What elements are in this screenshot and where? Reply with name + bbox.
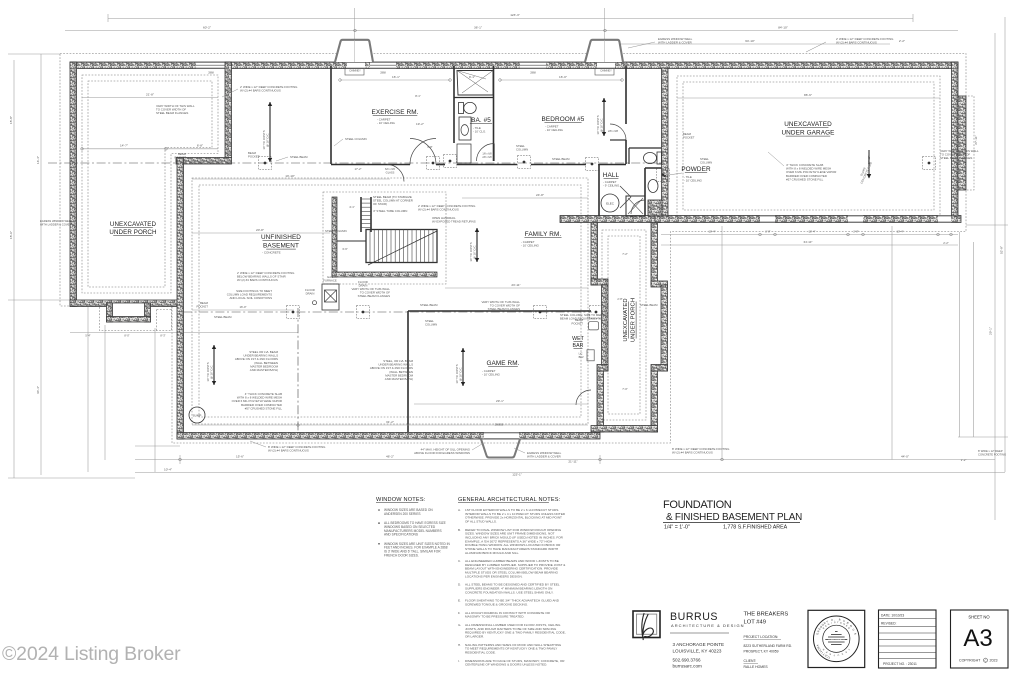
svg-text:ALUMINUM BRICK MOULD AND SILL.: ALUMINUM BRICK MOULD AND SILL. bbox=[465, 551, 519, 555]
svg-text:2868: 2868 bbox=[208, 72, 214, 75]
svg-text:23'-11": 23'-11" bbox=[511, 283, 520, 287]
svg-text:BASEMENT: BASEMENT bbox=[263, 243, 299, 250]
svg-text:COMMONWEALTH: COMMONWEALTH bbox=[828, 638, 845, 641]
svg-text:C.: C. bbox=[458, 559, 461, 563]
svg-text:46'-2": 46'-2" bbox=[386, 454, 394, 458]
svg-text:A.: A. bbox=[458, 508, 461, 512]
svg-text:2'-2": 2'-2" bbox=[943, 241, 949, 245]
svg-text:©2024 Listing Broker: ©2024 Listing Broker bbox=[2, 643, 181, 665]
svg-text:5'-4": 5'-4" bbox=[85, 334, 90, 338]
svg-text:#57 CRUSHED STONE FILL: #57 CRUSHED STONE FILL bbox=[245, 406, 283, 410]
svg-text:CLIENT:: CLIENT: bbox=[744, 659, 757, 663]
svg-text:- 10' CLG.: - 10' CLG. bbox=[473, 130, 486, 134]
svg-text:3 ANCHORAGE POINTE: 3 ANCHORAGE POINTE bbox=[673, 642, 725, 647]
svg-text:STEEL BEAM FLANGES: STEEL BEAM FLANGES bbox=[358, 294, 390, 298]
svg-text:20'-8": 20'-8" bbox=[256, 228, 264, 232]
svg-text:POCKET: POCKET bbox=[248, 154, 260, 158]
svg-text:6'-8": 6'-8" bbox=[427, 145, 432, 149]
svg-text:G.: G. bbox=[458, 623, 461, 627]
svg-text:10'-4": 10'-4" bbox=[808, 230, 815, 234]
svg-text:W/ (2) #4 BARS CONTINUOUS: W/ (2) #4 BARS CONTINUOUS bbox=[240, 89, 281, 93]
svg-text:- 10' CEILING: - 10' CEILING bbox=[377, 121, 396, 125]
svg-text:E.: E. bbox=[458, 599, 461, 603]
svg-text:LOCATIONS PER ENGINEERS DESIGN: LOCATIONS PER ENGINEERS DESIGN. bbox=[465, 574, 523, 578]
svg-text:STEEL BEAM: STEEL BEAM bbox=[214, 315, 232, 319]
svg-text:REVISED:: REVISED: bbox=[881, 621, 896, 625]
svg-text:STEEL BEAM: STEEL BEAM bbox=[290, 155, 308, 159]
svg-text:502.690.3766: 502.690.3766 bbox=[673, 658, 702, 663]
svg-text:PROJECT LOCATION:: PROJECT LOCATION: bbox=[744, 635, 779, 639]
svg-text:FRENCH DOOR SIZES.: FRENCH DOOR SIZES. bbox=[384, 553, 419, 557]
svg-text:8'-1": 8'-1" bbox=[415, 94, 421, 98]
svg-text:10'-4": 10'-4" bbox=[164, 467, 172, 471]
svg-text:OF STAIR): OF STAIR) bbox=[373, 202, 387, 206]
svg-text:@ 16" O.C.: @ 16" O.C. bbox=[472, 245, 476, 259]
svg-text:STEEL BEAM FLANGES: STEEL BEAM FLANGES bbox=[156, 111, 188, 115]
svg-text:17'-2": 17'-2" bbox=[354, 167, 361, 171]
svg-text:FAMILY RM.: FAMILY RM. bbox=[525, 231, 562, 238]
svg-text:60'-2": 60'-2" bbox=[203, 25, 211, 29]
svg-text:21'-11": 21'-11" bbox=[568, 460, 577, 464]
svg-text:15'-6": 15'-6" bbox=[236, 454, 244, 458]
svg-text:16'-4": 16'-4" bbox=[36, 156, 40, 164]
svg-text:W/ (2) #4 BARS CONTINUOUS: W/ (2) #4 BARS CONTINUOUS bbox=[418, 208, 459, 212]
svg-text:16'-0": 16'-0" bbox=[559, 75, 567, 79]
svg-text:LOT #49: LOT #49 bbox=[744, 620, 766, 626]
svg-text:6'-8": 6'-8" bbox=[197, 144, 203, 148]
svg-text:1,778 S.F.FINISHED AREA: 1,778 S.F.FINISHED AREA bbox=[723, 525, 788, 531]
svg-text:LOUISVILLE, KY 40223: LOUISVILLE, KY 40223 bbox=[673, 648, 722, 653]
svg-text:UNDER PORCH: UNDER PORCH bbox=[631, 298, 637, 342]
svg-text:SCREWED TONGUE & GROOVE DECKIN: SCREWED TONGUE & GROOVE DECKING. bbox=[465, 602, 528, 606]
svg-text:D.: D. bbox=[458, 583, 461, 587]
svg-text:W/ (2) #4 BARS CONTINUOUS: W/ (2) #4 BARS CONTINUOUS bbox=[268, 449, 309, 453]
svg-text:29'-1": 29'-1" bbox=[496, 399, 504, 403]
svg-text:SUMP: SUMP bbox=[193, 414, 202, 418]
svg-text:EGRESS WINDOW WELL: EGRESS WINDOW WELL bbox=[40, 219, 72, 223]
svg-text:BAR: BAR bbox=[573, 343, 584, 349]
svg-text:B.: B. bbox=[458, 528, 461, 532]
svg-text:ANDERSEN 200 SERIES: ANDERSEN 200 SERIES bbox=[384, 512, 421, 516]
svg-text:UNFINISHED: UNFINISHED bbox=[261, 234, 301, 241]
svg-text:10'-4": 10'-4" bbox=[896, 230, 903, 234]
svg-text:- 10' CEILING: - 10' CEILING bbox=[684, 179, 703, 183]
svg-text:STEEL COLUMN: STEEL COLUMN bbox=[325, 229, 347, 233]
svg-text:4" STEEL TUBE COLUMN: 4" STEEL TUBE COLUMN bbox=[373, 209, 407, 213]
svg-text:UNEXCAVATED: UNEXCAVATED bbox=[784, 121, 832, 128]
svg-text:8223 SUTHERLAND FARM RD.: 8223 SUTHERLAND FARM RD. bbox=[744, 644, 793, 648]
svg-text:STEEL BEAM FLANGES: STEEL BEAM FLANGES bbox=[488, 307, 520, 311]
svg-text:ELEC: ELEC bbox=[606, 202, 615, 206]
svg-text:RESIDENTIAL CODE.: RESIDENTIAL CODE. bbox=[465, 651, 496, 655]
svg-text:9'-1": 9'-1" bbox=[469, 75, 475, 79]
svg-text:OF ALL STUD WALLS.: OF ALL STUD WALLS. bbox=[465, 520, 497, 524]
svg-text:OR LARGER.: OR LARGER. bbox=[465, 635, 484, 639]
svg-text:34'-4": 34'-4" bbox=[36, 386, 40, 394]
svg-text:44'-0": 44'-0" bbox=[901, 454, 909, 458]
svg-text:2'-8": 2'-8" bbox=[765, 230, 770, 234]
svg-text:1/8 x 6/8: 1/8 x 6/8 bbox=[482, 153, 492, 156]
svg-text:UNDER PORCH: UNDER PORCH bbox=[109, 229, 156, 236]
svg-text:STEEL BEAM: STEEL BEAM bbox=[640, 303, 658, 307]
svg-text:WITH LADDER & COVER: WITH LADDER & COVER bbox=[40, 222, 71, 226]
svg-text:2'-8": 2'-8" bbox=[853, 230, 858, 234]
svg-text:31'-2": 31'-2" bbox=[386, 420, 394, 424]
svg-text:AND LOCAL SOIL CONDITIONS: AND LOCAL SOIL CONDITIONS bbox=[229, 296, 272, 300]
svg-text:8'-3": 8'-3" bbox=[160, 334, 165, 338]
svg-text:CENTERLINE OF WINDOWS & DOORS: CENTERLINE OF WINDOWS & DOORS UNLESS NOT… bbox=[465, 663, 547, 667]
svg-text:A3: A3 bbox=[963, 625, 992, 652]
svg-text:6/0 x 6/0: 6/0 x 6/0 bbox=[385, 167, 396, 171]
svg-text:21'-8": 21'-8" bbox=[146, 93, 154, 97]
svg-text:84'-10": 84'-10" bbox=[778, 25, 788, 29]
svg-text:H.: H. bbox=[458, 643, 461, 647]
svg-text:2'-2": 2'-2" bbox=[961, 458, 967, 462]
svg-text:#57 CRUSHED STONE FILL: #57 CRUSHED STONE FILL bbox=[786, 177, 824, 181]
svg-text:C: C bbox=[984, 658, 986, 662]
svg-text:BURRUS: BURRUS bbox=[670, 611, 718, 623]
svg-text:WINDOW NOTES:: WINDOW NOTES: bbox=[376, 497, 426, 503]
svg-text:@ 16" O.C.: @ 16" O.C. bbox=[209, 365, 213, 379]
svg-text:CONCRETE FOOTING: CONCRETE FOOTING bbox=[978, 452, 1006, 456]
svg-text:THE BREAKERS: THE BREAKERS bbox=[744, 612, 789, 618]
svg-text:UNEXCAVATED: UNEXCAVATED bbox=[110, 221, 157, 228]
svg-text:GENERAL ARCHITECTURAL NOTES:: GENERAL ARCHITECTURAL NOTES: bbox=[458, 497, 561, 503]
svg-text:19'-2": 19'-2" bbox=[416, 122, 424, 126]
svg-text:& FINISHED BASEMENT PLAN: & FINISHED BASEMENT PLAN bbox=[666, 512, 802, 523]
svg-text:@ 16" O.C.: @ 16" O.C. bbox=[265, 133, 269, 147]
svg-text:ARCHITECTURE & DESIGN: ARCHITECTURE & DESIGN bbox=[671, 623, 745, 628]
svg-text:2/8 x 6/8: 2/8 x 6/8 bbox=[608, 129, 619, 133]
svg-text:GAME RM.: GAME RM. bbox=[486, 360, 519, 367]
svg-text:CONCRETE FOUNDATION WALLS. US: CONCRETE FOUNDATION WALLS. USE STEEL SHI… bbox=[465, 590, 554, 594]
svg-text:36'-1": 36'-1" bbox=[474, 25, 482, 29]
svg-text:POWDER: POWDER bbox=[681, 166, 711, 173]
svg-text:WET: WET bbox=[572, 336, 585, 342]
svg-text:7'-2": 7'-2" bbox=[622, 252, 628, 256]
svg-text:W/ EXPOSED TREAD RETURNS: W/ EXPOSED TREAD RETURNS bbox=[432, 220, 476, 224]
svg-text:- 9' CEILING: - 9' CEILING bbox=[603, 184, 620, 188]
svg-text:64'-10": 64'-10" bbox=[804, 240, 813, 244]
svg-text:PROJECT NO. : 23011: PROJECT NO. : 23011 bbox=[883, 662, 917, 666]
svg-text:SHEET NO: SHEET NO bbox=[968, 615, 990, 620]
svg-text:AND SPECIFICATIONS: AND SPECIFICATIONS bbox=[384, 533, 418, 537]
svg-text:RALLE HOMES: RALLE HOMES bbox=[744, 665, 769, 669]
svg-text:F.: F. bbox=[458, 611, 461, 615]
svg-text:MASONRY TO BE PRESSURE TREATED: MASONRY TO BE PRESSURE TREATED. bbox=[465, 615, 524, 619]
svg-text:WITH LADDER & COVER: WITH LADDER & COVER bbox=[527, 455, 561, 459]
svg-text:W/ (2) #4 BARS CONTINUOUS: W/ (2) #4 BARS CONTINUOUS bbox=[237, 278, 278, 282]
svg-text:UNDER GARAGE: UNDER GARAGE bbox=[781, 130, 834, 137]
svg-text:- 10' CEILING: - 10' CEILING bbox=[521, 244, 540, 248]
svg-text:10'-4": 10'-4" bbox=[708, 230, 715, 234]
svg-text:2023: 2023 bbox=[990, 659, 998, 663]
svg-text:UNEXCAVATED: UNEXCAVATED bbox=[623, 298, 629, 341]
svg-text:123'-1": 123'-1" bbox=[512, 473, 522, 477]
svg-text:burrusarc.com: burrusarc.com bbox=[673, 664, 703, 669]
svg-text:AND MASTER BATH): AND MASTER BATH) bbox=[250, 368, 278, 372]
svg-text:STEEL BEAM: STEEL BEAM bbox=[420, 303, 438, 307]
svg-text:13'-10": 13'-10" bbox=[285, 174, 295, 178]
svg-text:POCKET: POCKET bbox=[196, 304, 208, 308]
svg-text:@ 16" O.C.: @ 16" O.C. bbox=[599, 118, 603, 132]
svg-text:16'-1": 16'-1" bbox=[392, 75, 400, 79]
svg-text:- CONCRETE: - CONCRETE bbox=[262, 251, 281, 255]
svg-text:2868: 2868 bbox=[380, 72, 386, 75]
svg-text:GLASS: GLASS bbox=[386, 170, 395, 174]
svg-text:FOUNDATION: FOUNDATION bbox=[663, 499, 732, 511]
svg-text:FURNACE: FURNACE bbox=[323, 278, 337, 282]
svg-text:W/ (2) #4 BARS CONTINUOUS: W/ (2) #4 BARS CONTINUOUS bbox=[672, 451, 713, 455]
svg-text:52'-8": 52'-8" bbox=[1000, 246, 1004, 254]
svg-text:4'-1": 4'-1" bbox=[349, 205, 355, 209]
svg-text:BEAM LOAD REQUIREMENTS: BEAM LOAD REQUIREMENTS bbox=[560, 317, 601, 321]
svg-text:3'-6": 3'-6" bbox=[342, 247, 348, 251]
svg-text:BA. #5: BA. #5 bbox=[471, 117, 491, 124]
svg-text:123'-3": 123'-3" bbox=[510, 13, 520, 17]
svg-text:DATE: 10/10/23: DATE: 10/10/23 bbox=[881, 614, 904, 618]
svg-text:64'-10": 64'-10" bbox=[745, 39, 755, 43]
svg-text:I.: I. bbox=[458, 659, 460, 663]
svg-text:WITH LADDER & COVER: WITH LADDER & COVER bbox=[658, 41, 692, 45]
svg-text:CHIMNEY: CHIMNEY bbox=[349, 70, 361, 73]
svg-text:2868SB: 2868SB bbox=[495, 424, 504, 427]
svg-text:@ 16" O.C.: @ 16" O.C. bbox=[458, 367, 462, 381]
svg-text:AND MASTER BATH): AND MASTER BATH) bbox=[385, 377, 413, 381]
svg-text:2/8 x 6/8: 2/8 x 6/8 bbox=[482, 156, 492, 159]
svg-text:15'-6": 15'-6" bbox=[9, 231, 13, 239]
svg-text:14'-7": 14'-7" bbox=[120, 144, 128, 148]
svg-text:STEEL BEAM: STEEL BEAM bbox=[552, 157, 570, 161]
svg-text:COLUMN: COLUMN bbox=[700, 160, 712, 164]
svg-text:EXERCISE RM.: EXERCISE RM. bbox=[371, 109, 418, 116]
svg-text:- 10' CEILING: - 10' CEILING bbox=[545, 128, 564, 132]
svg-text:BEDROOM #5: BEDROOM #5 bbox=[542, 116, 585, 123]
svg-text:COLUMN: COLUMN bbox=[425, 322, 437, 326]
svg-text:- 10' CEILING: - 10' CEILING bbox=[482, 373, 501, 377]
svg-text:STEEL COLUMN: STEEL COLUMN bbox=[345, 137, 367, 141]
svg-text:COPYRIGHT: COPYRIGHT bbox=[959, 659, 981, 663]
svg-text:7'-0": 7'-0" bbox=[622, 387, 628, 391]
svg-text:2868: 2868 bbox=[530, 72, 536, 75]
svg-text:16'-0": 16'-0" bbox=[239, 305, 246, 309]
svg-text:2'-8": 2'-8" bbox=[617, 297, 622, 301]
svg-text:DRAIN: DRAIN bbox=[359, 283, 368, 287]
svg-text:CHIMNEY: CHIMNEY bbox=[600, 70, 612, 73]
svg-text:STEEL BEAM FLANGES: STEEL BEAM FLANGES bbox=[940, 156, 972, 160]
svg-text:BEV.: BEV. bbox=[579, 356, 585, 359]
svg-text:8' WIDE x 12" DEEP: 8' WIDE x 12" DEEP bbox=[978, 449, 1003, 453]
svg-text:HALL: HALL bbox=[603, 172, 620, 179]
svg-text:POCKET: POCKET bbox=[683, 135, 695, 139]
svg-text:1/4" = 1'-0": 1/4" = 1'-0" bbox=[664, 525, 690, 531]
svg-text:8'-0": 8'-0" bbox=[124, 334, 129, 338]
svg-text:POCKET: POCKET bbox=[174, 155, 186, 159]
svg-text:POCKET: POCKET bbox=[571, 321, 583, 325]
svg-text:W/ (2) #4 BARS CONTINUOUS: W/ (2) #4 BARS CONTINUOUS bbox=[836, 41, 877, 45]
svg-text:2'-2": 2'-2" bbox=[899, 39, 905, 43]
svg-text:15'-8": 15'-8" bbox=[9, 116, 13, 124]
svg-text:27'-11": 27'-11" bbox=[867, 156, 871, 164]
svg-text:COLUMN: COLUMN bbox=[516, 147, 528, 151]
svg-text:24'-8": 24'-8" bbox=[536, 193, 544, 197]
svg-text:27'-11": 27'-11" bbox=[974, 135, 978, 144]
svg-text:DRAIN: DRAIN bbox=[306, 291, 315, 295]
svg-text:ABOVE FLOOR FOR EGRESS WINDOWS: ABOVE FLOOR FOR EGRESS WINDOWS bbox=[414, 451, 470, 455]
svg-text:29'-1": 29'-1" bbox=[989, 327, 993, 335]
svg-text:PROSPECT, KY 40059: PROSPECT, KY 40059 bbox=[744, 650, 779, 654]
svg-text:86'-6": 86'-6" bbox=[804, 93, 812, 97]
